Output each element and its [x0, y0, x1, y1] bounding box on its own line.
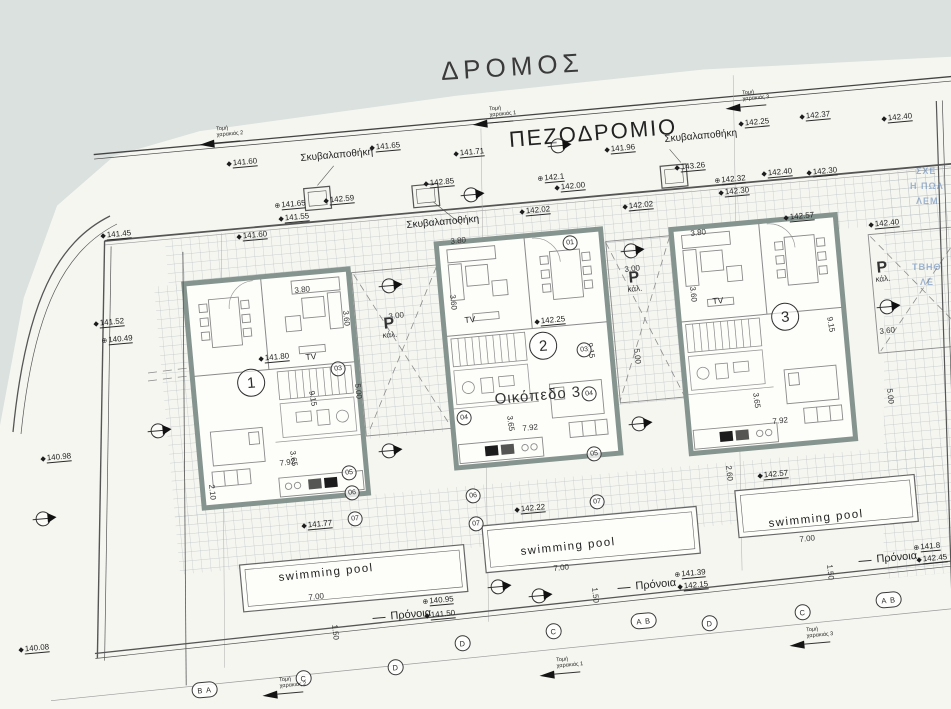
rotated-plan-group — [0, 50, 951, 700]
house-2 — [436, 229, 621, 468]
house-3 — [671, 215, 856, 454]
site-plan-drawing: ΔΡΟΜΟΣ ΠΕΖΟΔΡΟΜΙΟ Οικόπεδο 3 ◆141.45◆141… — [0, 0, 951, 709]
house-1 — [184, 269, 369, 508]
road-curve-outer — [13, 216, 110, 432]
plan-linework — [0, 0, 951, 709]
